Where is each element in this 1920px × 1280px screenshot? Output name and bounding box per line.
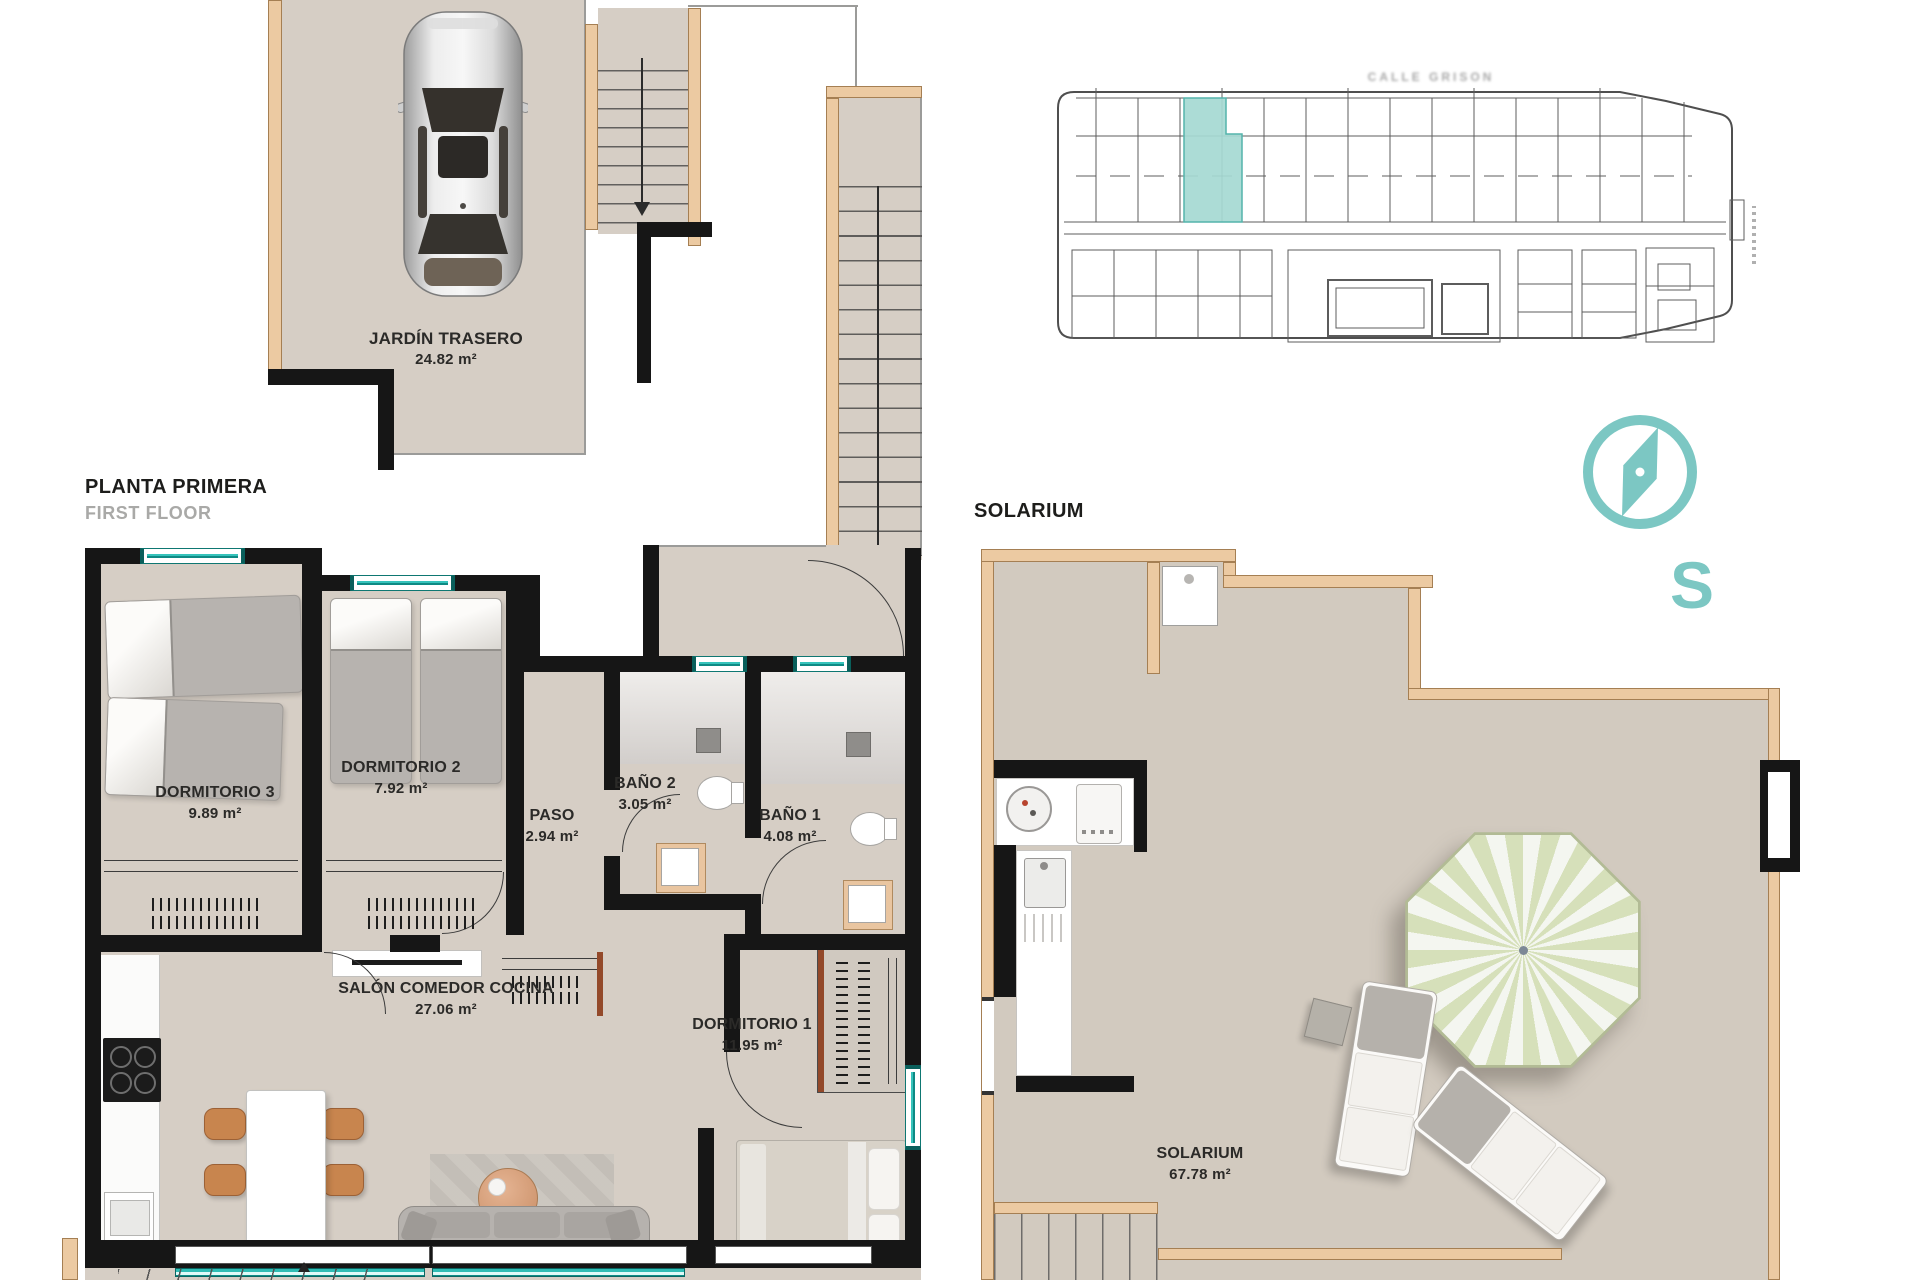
room-label-solarium: SOLARIUM 67.78 m² [1157,1143,1244,1185]
wardrobe-shelf [326,860,502,872]
wall [524,591,540,656]
wardrobe-shelf [888,958,897,1084]
bbq-burner-icon [1006,786,1052,832]
wall [506,575,524,935]
tan-wall [994,1202,1158,1214]
room-label-bano1: BAÑO 1 4.08 m² [759,805,821,847]
tan-wall [62,1238,78,1280]
shower-head-icon [696,728,721,753]
tan-wall [826,98,839,560]
window [350,575,455,591]
toilet-tank [884,818,897,840]
wall [268,369,394,385]
window-glazing [432,1246,687,1264]
solarium-title: SOLARIUM [974,500,1084,523]
tan-wall [981,549,994,1280]
tan-wall [1158,1248,1562,1260]
window [982,997,994,1095]
room-label-paso: PASO 2.94 m² [525,805,578,847]
dining-chair [204,1164,246,1196]
hanger-marks [152,898,260,911]
solarium-floor [1230,588,1420,1280]
tv-icon [352,960,462,965]
wall [643,545,659,672]
lounger-backrest [1356,985,1433,1060]
hanger-marks [368,898,476,911]
burner-icon [134,1072,156,1094]
wall [524,656,692,672]
tan-wall [268,0,282,385]
drainboard-lines [1024,914,1064,942]
wall [637,222,712,237]
wardrobe-accent [597,952,603,1016]
arrow-up-icon [298,1262,310,1272]
room-label-bano2: BAÑO 2 3.05 m² [614,773,676,815]
wall [85,548,101,1280]
knob-icon [1030,810,1036,816]
compass-icon: S [1576,408,1726,623]
compass-south-label: S [1670,548,1714,622]
thin-line [394,453,585,455]
wall [85,548,140,564]
bed-pillow [421,599,501,651]
wall [455,575,540,591]
outdoor-appliance [1076,784,1122,844]
stair-treads [839,186,922,556]
drain-icon [1184,574,1194,584]
window [140,548,245,564]
wall [1016,1076,1134,1092]
car-top-view [398,8,528,300]
tray-icon [488,1178,506,1196]
hanger-marks [836,958,848,1084]
window-glazing [715,1246,872,1264]
wall [302,548,322,591]
bed-pillow [331,599,411,651]
hanger-marks [368,916,476,929]
dining-chair [204,1108,246,1140]
stair-treads [994,1214,1158,1280]
toilet-tank [731,782,744,804]
room-label-dormitorio3: DORMITORIO 3 9.89 m² [155,782,274,824]
wall [994,760,1147,778]
site-plan-side-label-smudge [1752,206,1756,264]
thin-line [688,5,858,7]
shower-head-icon [846,732,871,757]
garden-notch [268,385,378,455]
wash-basin [848,885,886,923]
wall [747,656,793,672]
hanger-marks [858,958,870,1084]
burner-icon [110,1072,132,1094]
wall [302,591,322,935]
wardrobe-shelf [502,958,600,970]
wall [390,935,440,952]
wall [905,548,921,1280]
window [905,1065,921,1150]
tan-wall [688,8,701,246]
site-plan [1036,72,1752,372]
wall [322,575,350,591]
sofa-back-cushion [494,1212,560,1238]
thin-line [855,5,857,86]
lounger-seat [1339,1107,1415,1171]
room-label-jardin: JARDÍN TRASERO 24.82 m² [369,328,523,370]
dining-chair [322,1164,364,1196]
stair-treads [118,1269,388,1280]
wall [378,385,394,470]
room-label-dormitorio1: DORMITORIO 1 11.95 m² [692,1014,811,1056]
sink-bowl [110,1200,150,1236]
tan-wall [826,86,922,98]
wash-basin [661,848,699,886]
plan-title: PLANTA PRIMERA [85,476,267,499]
arrow-down-icon [634,202,650,216]
tan-wall [1408,688,1780,700]
wall [1134,760,1147,852]
burner-icon [110,1046,132,1068]
wall [724,934,921,950]
dining-chair [322,1108,364,1140]
window [692,656,747,672]
cooktop [103,1038,161,1102]
shower-zone [620,672,745,764]
stair-guide-line [641,58,643,204]
window [793,656,851,672]
tan-wall [981,549,1236,562]
wall [637,237,651,383]
hanger-marks [152,916,260,929]
knob-icon [1022,800,1028,806]
tan-wall [585,24,598,230]
wall [604,894,761,910]
lounger-seat [1347,1052,1423,1116]
thin-line [659,545,826,547]
room-label-salon: SALÓN COMEDOR COCINA 27.06 m² [338,978,554,1020]
wardrobe-accent [818,950,824,1092]
chimney-flue [1768,772,1790,858]
wall [85,935,322,952]
sliding-door [432,1268,685,1277]
tan-wall [1147,562,1160,674]
bed-pillow [105,600,174,698]
parasol [1395,822,1651,1078]
appliance-buttons [1082,830,1114,834]
faucet-icon [1040,862,1048,870]
room-label-dormitorio2: DORMITORIO 2 7.92 m² [341,757,460,799]
single-bed [104,595,303,700]
parasol-pole [1519,946,1528,955]
exterior-notch [322,548,540,575]
shower-zone [761,672,905,784]
floorplan-sheet: JARDÍN TRASERO 24.82 m² [0,0,1920,1280]
wardrobe-shelf [104,860,298,872]
burner-icon [134,1046,156,1068]
bed-pillow [868,1148,900,1210]
exterior-notch [540,548,643,656]
tan-wall [1223,575,1433,588]
plan-subtitle: FIRST FLOOR [85,503,212,524]
wall [994,845,1016,997]
tan-wall [1408,588,1421,700]
